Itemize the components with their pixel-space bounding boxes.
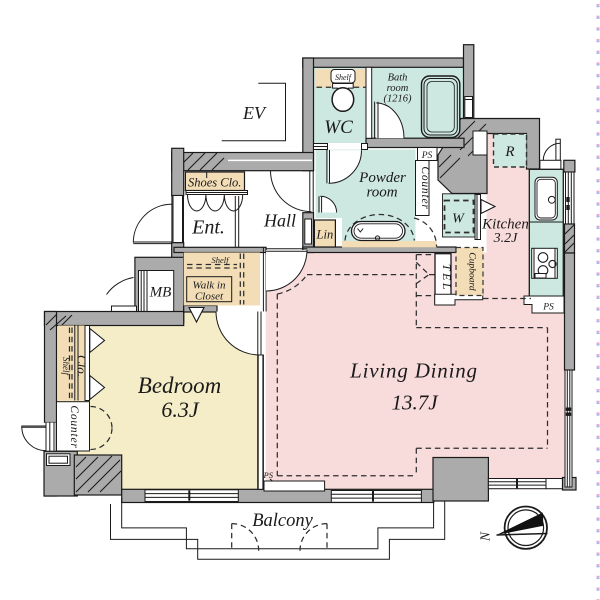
- svg-text:Shelf: Shelf: [61, 357, 71, 376]
- svg-text:room: room: [387, 83, 409, 94]
- svg-text:Bath: Bath: [388, 73, 408, 84]
- svg-text:Hall: Hall: [263, 211, 296, 231]
- svg-text:Balcony: Balcony: [252, 511, 313, 531]
- svg-text:Counter: Counter: [419, 166, 431, 209]
- svg-text:R: R: [504, 144, 514, 160]
- svg-text:MB: MB: [149, 285, 172, 301]
- svg-text:EV: EV: [242, 103, 267, 123]
- svg-text:N: N: [478, 531, 493, 542]
- svg-text:PS: PS: [421, 151, 433, 161]
- svg-text:Lin: Lin: [316, 228, 334, 242]
- svg-text:Cupboard: Cupboard: [467, 252, 477, 290]
- svg-text:6.3J: 6.3J: [161, 397, 200, 422]
- svg-text:Bedroom: Bedroom: [138, 373, 221, 398]
- svg-text:Shoes Clo.: Shoes Clo.: [188, 176, 241, 190]
- svg-text:Shelf: Shelf: [212, 255, 231, 265]
- svg-text:room: room: [366, 185, 397, 201]
- svg-text:TEL: TEL: [440, 264, 454, 292]
- svg-text:PS: PS: [542, 303, 554, 313]
- svg-text:Living Dining: Living Dining: [349, 359, 478, 383]
- svg-text:Counter: Counter: [68, 405, 80, 448]
- svg-text:Shelf: Shelf: [335, 73, 353, 82]
- svg-text:(1216): (1216): [384, 94, 412, 105]
- svg-text:13.7J: 13.7J: [391, 391, 439, 415]
- svg-text:Closet: Closet: [195, 291, 224, 303]
- svg-text:WC: WC: [324, 117, 353, 138]
- svg-text:W: W: [452, 212, 465, 227]
- svg-text:Ent.: Ent.: [191, 217, 225, 239]
- svg-text:3.2J: 3.2J: [493, 231, 519, 246]
- svg-text:PS: PS: [263, 470, 274, 480]
